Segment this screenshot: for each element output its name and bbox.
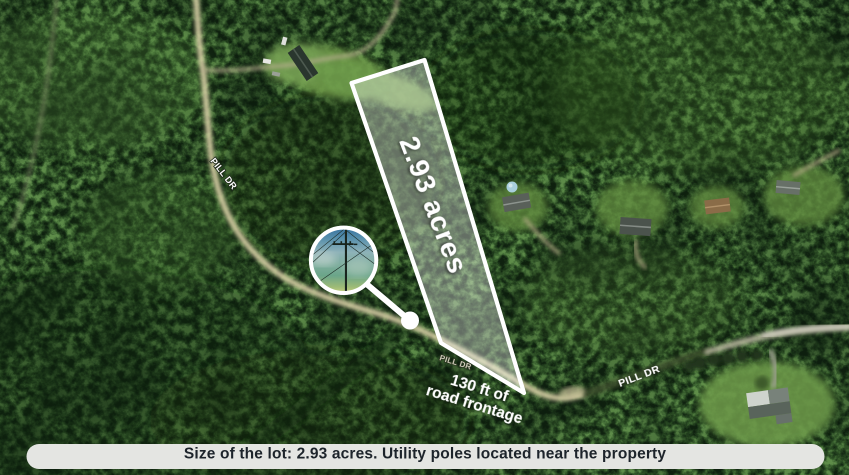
svg-text:Size of the lot: 2.93 acres. U: Size of the lot: 2.93 acres. Utility pol… bbox=[184, 446, 666, 463]
